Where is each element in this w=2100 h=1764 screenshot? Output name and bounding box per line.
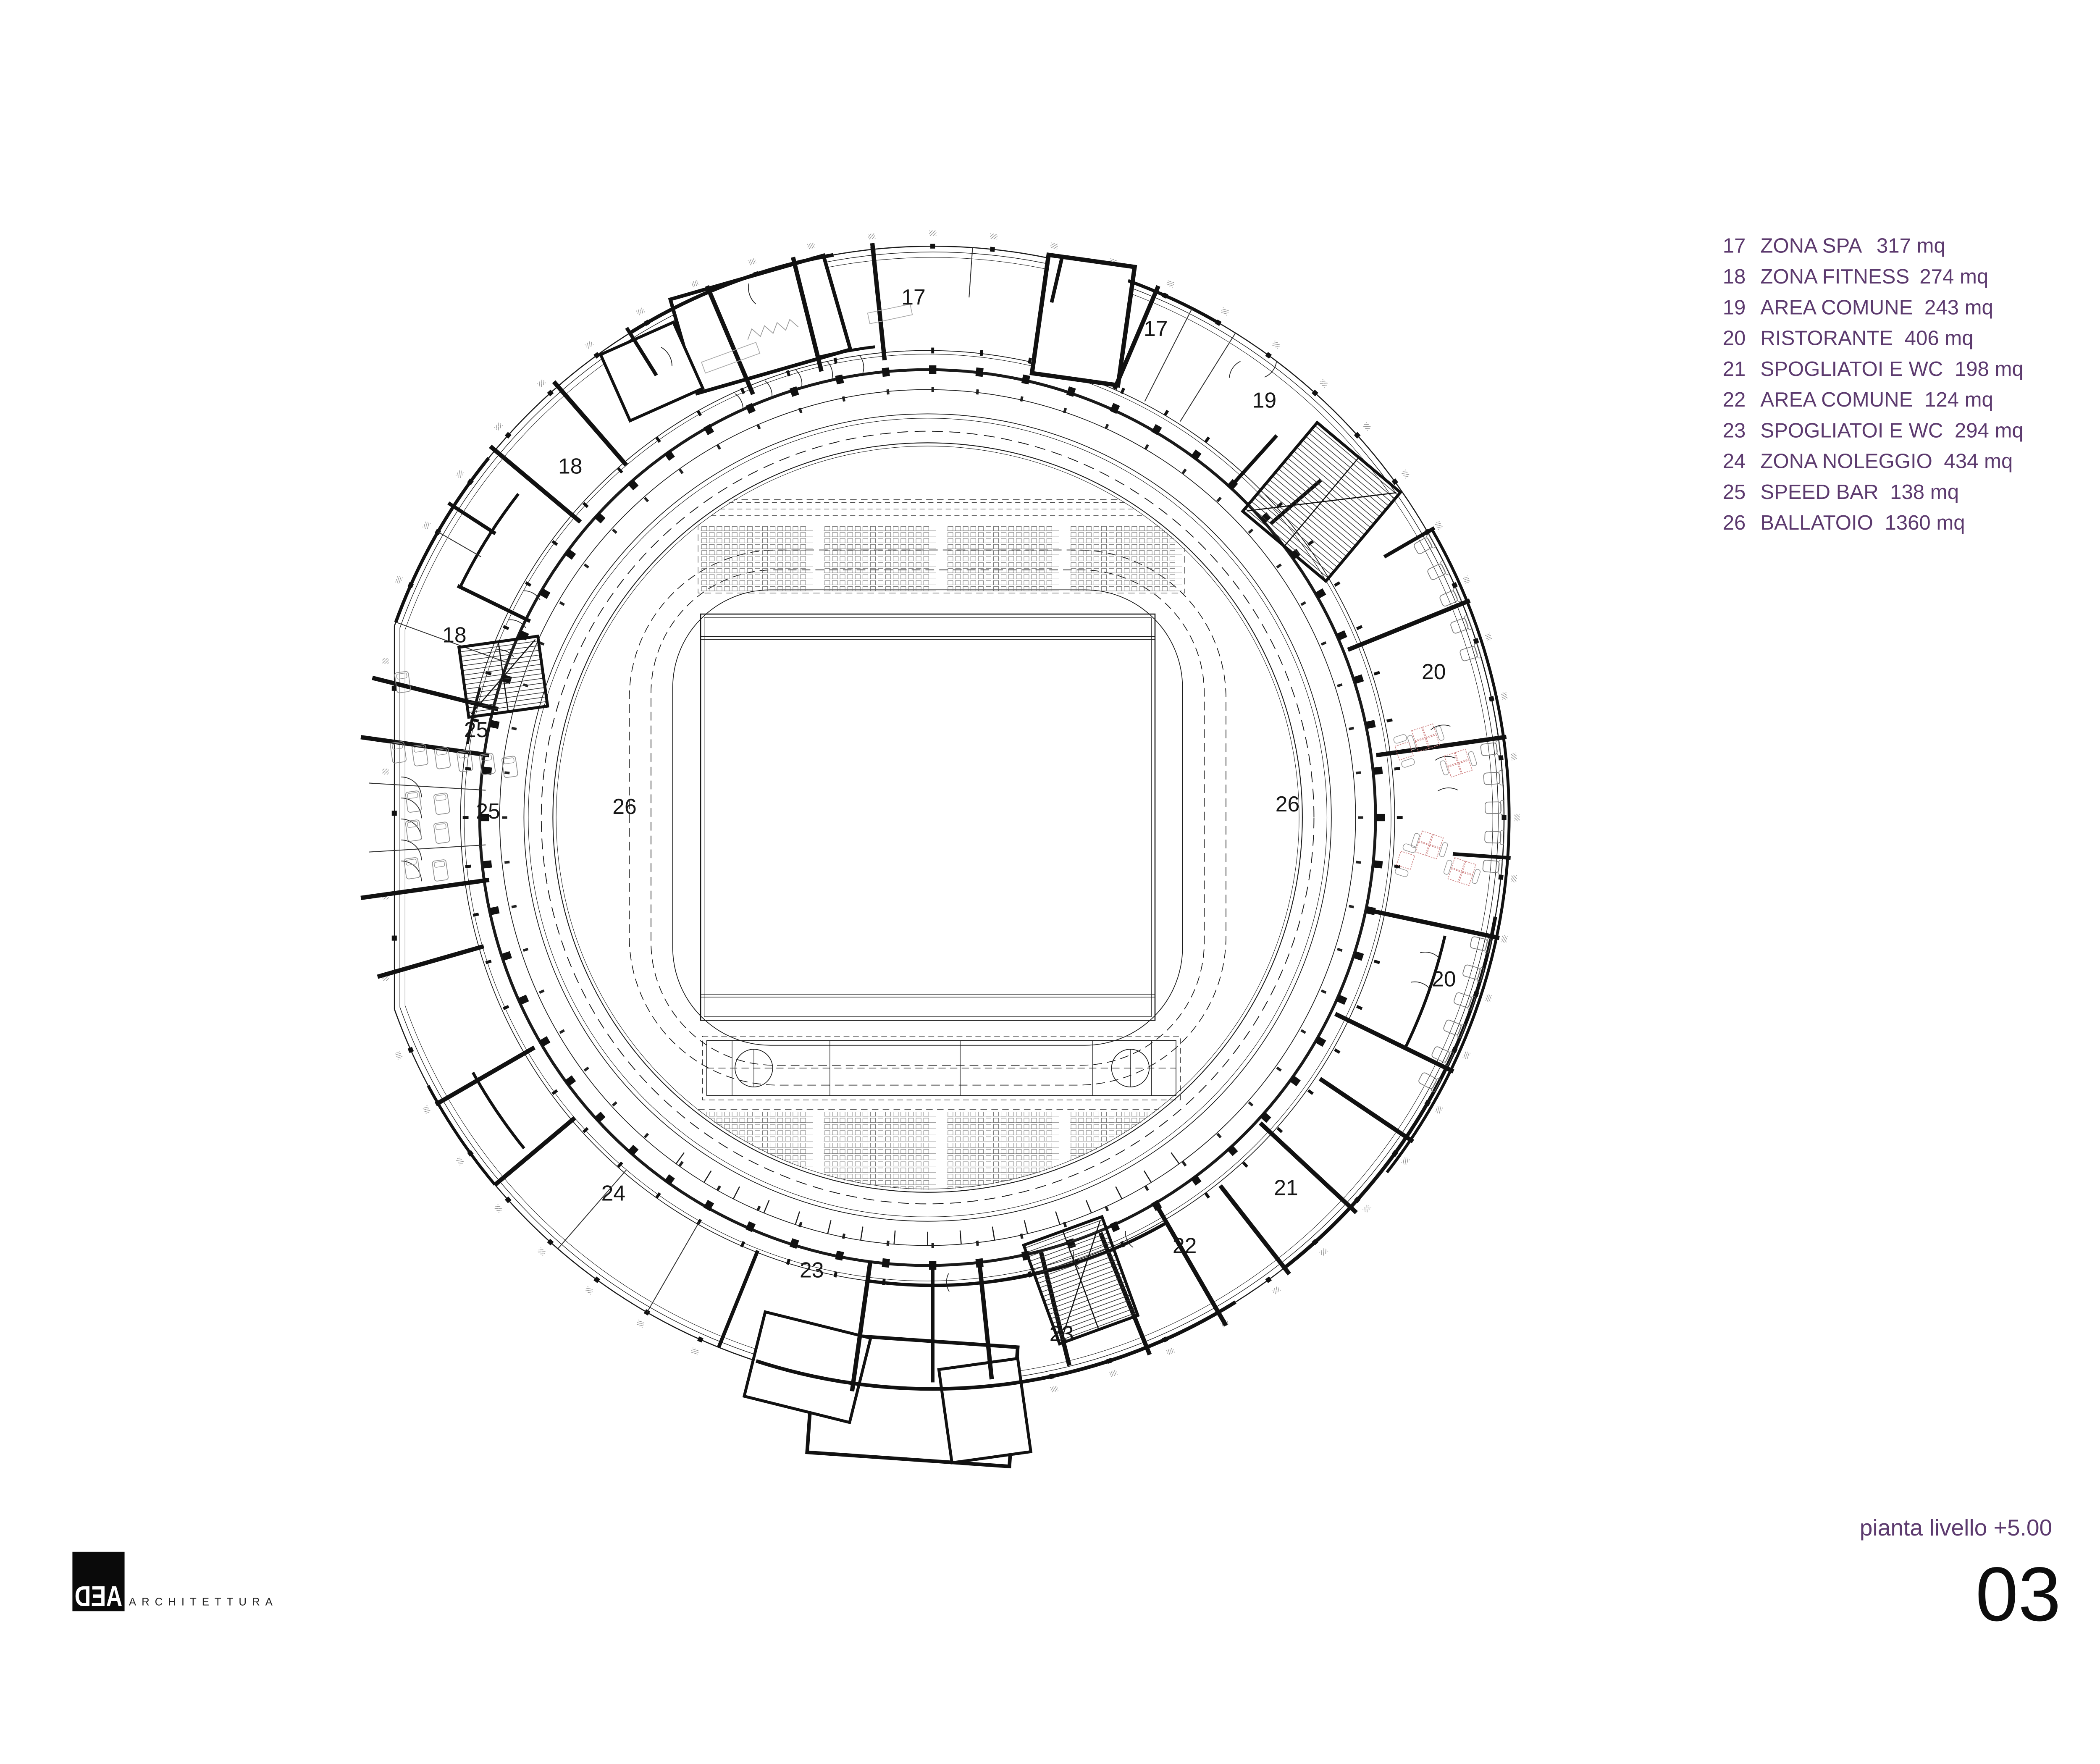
legend-item: 26BALLATOIO1360 mq	[1723, 512, 1965, 534]
svg-text:17: 17	[901, 285, 926, 309]
logo-text: ARCHITETTURA	[129, 1596, 278, 1608]
svg-text:21: 21	[1274, 1176, 1298, 1200]
svg-text:22: 22	[1173, 1234, 1197, 1258]
logo: AED ARCHITETTURA	[72, 1552, 278, 1612]
legend-item: 24ZONA NOLEGGIO434 mq	[1723, 450, 2013, 473]
svg-text:25: 25	[476, 799, 500, 823]
svg-text:17: 17	[1144, 316, 1168, 341]
svg-text:25: 25	[464, 717, 488, 742]
svg-text:26: 26	[612, 794, 637, 819]
legend-item: 25SPEED BAR138 mq	[1723, 481, 1959, 504]
legend-item: 20RISTORANTE406 mq	[1723, 327, 1974, 350]
floorplan-sheet: 17171918182025252626202124222323 17ZONA …	[0, 0, 2100, 1764]
svg-text:18: 18	[442, 622, 467, 647]
svg-text:23: 23	[1050, 1321, 1074, 1346]
svg-text:19: 19	[1252, 388, 1277, 412]
svg-text:20: 20	[1422, 659, 1446, 684]
legend-item: 21SPOGLIATOI E WC198 mq	[1723, 358, 2024, 381]
legend: 17ZONA SPA317 mq 18ZONA FITNESS274 mq 19…	[1723, 235, 2024, 534]
legend-item: 23SPOGLIATOI E WC294 mq	[1723, 419, 2024, 442]
plan-drawing: 17171918182025252626202124222323	[361, 231, 1520, 1467]
legend-item: 18ZONA FITNESS274 mq	[1723, 265, 1988, 288]
svg-text:24: 24	[601, 1181, 626, 1205]
legend-item: 19AREA COMUNE243 mq	[1723, 296, 1993, 319]
drawing-title: pianta livello +5.00	[1860, 1515, 2052, 1541]
legend-item: 22AREA COMUNE124 mq	[1723, 388, 1993, 411]
svg-text:20: 20	[1432, 966, 1456, 991]
legend-item: 17ZONA SPA317 mq	[1723, 235, 1945, 257]
title-block: pianta livello +5.00 03	[1860, 1515, 2061, 1637]
svg-text:26: 26	[1276, 792, 1300, 816]
logo-mark: AED	[75, 1580, 123, 1612]
svg-text:18: 18	[558, 454, 583, 478]
svg-text:23: 23	[800, 1257, 824, 1282]
sheet-number: 03	[1976, 1551, 2061, 1637]
